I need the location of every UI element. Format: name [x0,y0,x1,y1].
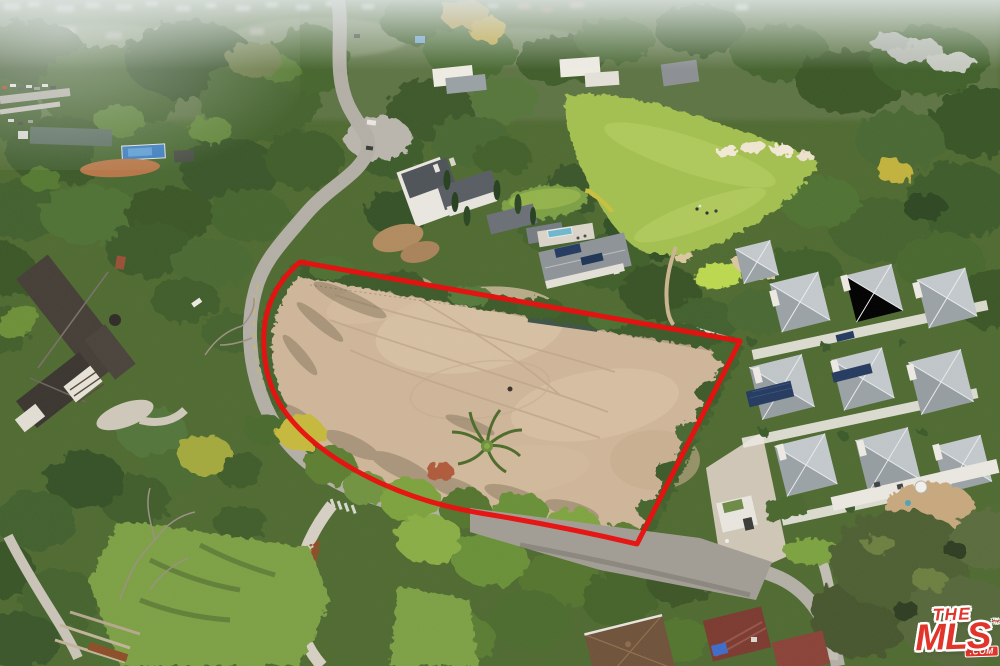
mls-logo: THE MLS™ .COM [914,606,991,659]
mls-logo-mls: MLS™ [915,620,991,653]
trademark-symbol: ™ [992,620,999,627]
aerial-photo: THE MLS™ .COM [0,0,1000,666]
corner-haze [0,0,300,170]
aerial-scene [0,0,1000,666]
